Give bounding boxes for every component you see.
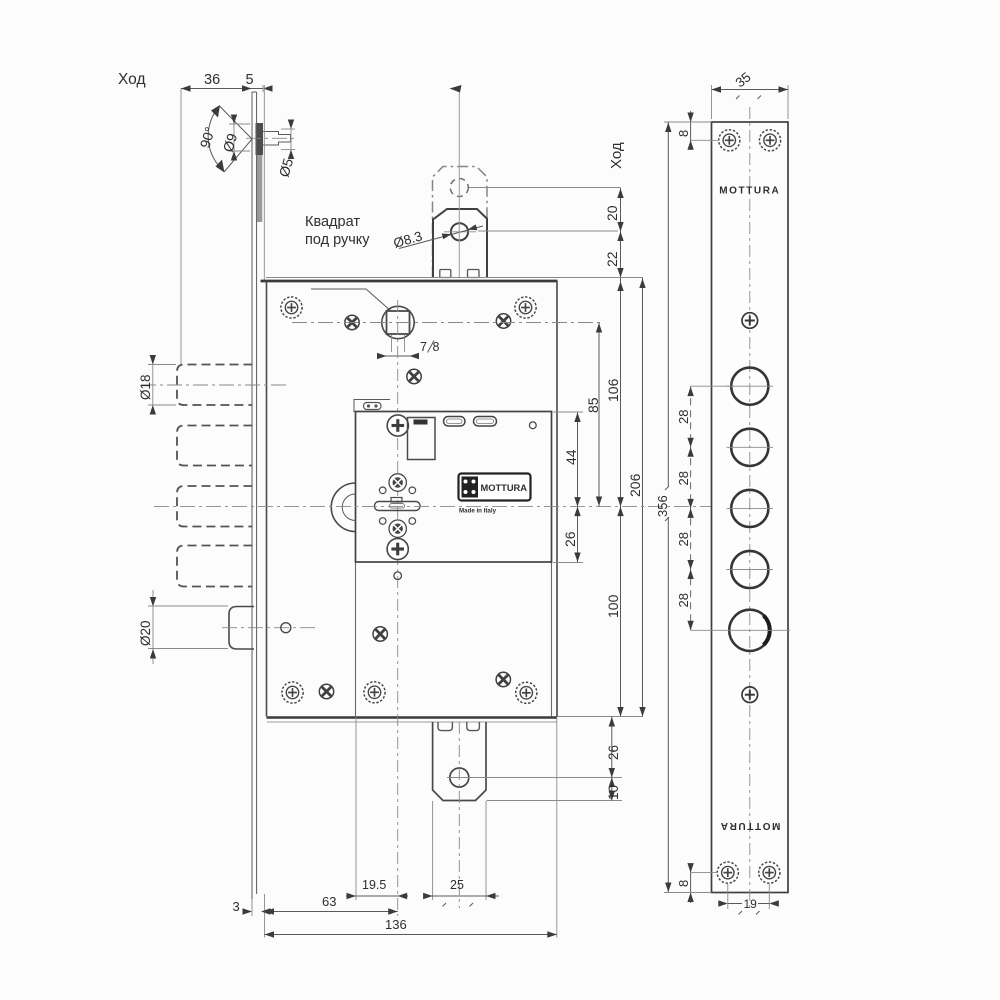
svg-text:20: 20: [604, 205, 620, 221]
svg-text:85: 85: [585, 397, 601, 413]
svg-text:136: 136: [385, 917, 407, 932]
svg-text:106: 106: [605, 378, 621, 402]
svg-text:19: 19: [744, 897, 758, 911]
svg-text:36: 36: [204, 72, 220, 88]
svg-text:7: 7: [420, 340, 427, 354]
svg-text:3: 3: [233, 899, 240, 914]
svg-text:10: 10: [606, 785, 621, 800]
svg-text:Квадрат: Квадрат: [305, 214, 360, 230]
svg-text:под ручку: под ручку: [305, 232, 370, 248]
svg-text:28: 28: [676, 471, 691, 485]
svg-text:MOTTURA: MOTTURA: [481, 483, 528, 493]
svg-text:MOTTURA: MOTTURA: [719, 186, 780, 197]
svg-text:100: 100: [605, 594, 621, 618]
svg-text:356: 356: [655, 495, 670, 517]
svg-text:Ø20: Ø20: [138, 620, 153, 646]
svg-text:Ход: Ход: [608, 142, 625, 169]
svg-text:25: 25: [450, 878, 464, 892]
svg-text:63: 63: [322, 894, 336, 909]
svg-text:8: 8: [676, 880, 691, 887]
svg-text:28: 28: [676, 532, 691, 546]
svg-text:8: 8: [676, 130, 691, 137]
svg-text:19.5: 19.5: [362, 878, 386, 892]
svg-text:28: 28: [676, 410, 691, 424]
svg-text:Ø18: Ø18: [138, 374, 153, 400]
svg-text:MOTTURA: MOTTURA: [719, 820, 780, 831]
svg-text:26: 26: [606, 745, 621, 760]
svg-text:206: 206: [627, 473, 643, 497]
svg-text:26: 26: [562, 531, 578, 547]
svg-text:Ход: Ход: [118, 71, 146, 88]
svg-text:44: 44: [563, 449, 579, 465]
svg-text:22: 22: [604, 251, 620, 267]
svg-text:28: 28: [676, 593, 691, 607]
svg-text:Made in Italy: Made in Italy: [459, 508, 496, 515]
svg-text:5: 5: [246, 72, 254, 88]
